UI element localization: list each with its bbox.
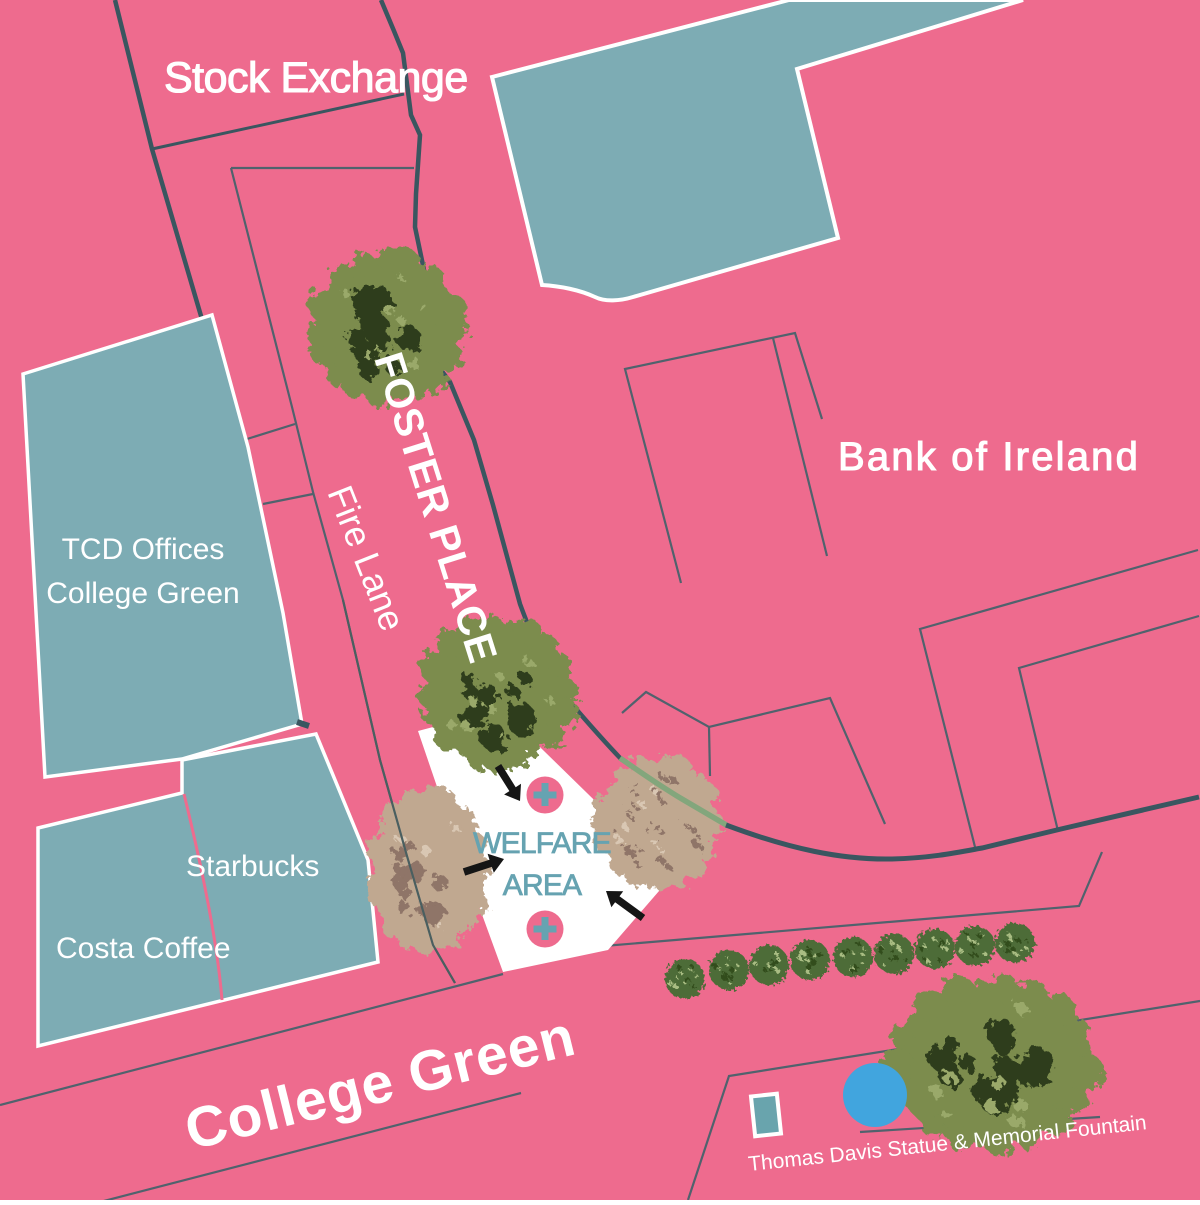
svg-text:WELFARE: WELFARE <box>473 827 611 860</box>
svg-text:AREA: AREA <box>503 869 582 902</box>
svg-text:Costa Coffee: Costa Coffee <box>56 932 231 965</box>
svg-text:Starbucks: Starbucks <box>186 850 319 883</box>
svg-text:Bank of Ireland: Bank of Ireland <box>838 435 1140 479</box>
svg-text:Stock Exchange: Stock Exchange <box>164 54 468 102</box>
svg-text:TCD Offices: TCD Offices <box>62 533 225 566</box>
svg-text:College Green: College Green <box>46 577 239 610</box>
